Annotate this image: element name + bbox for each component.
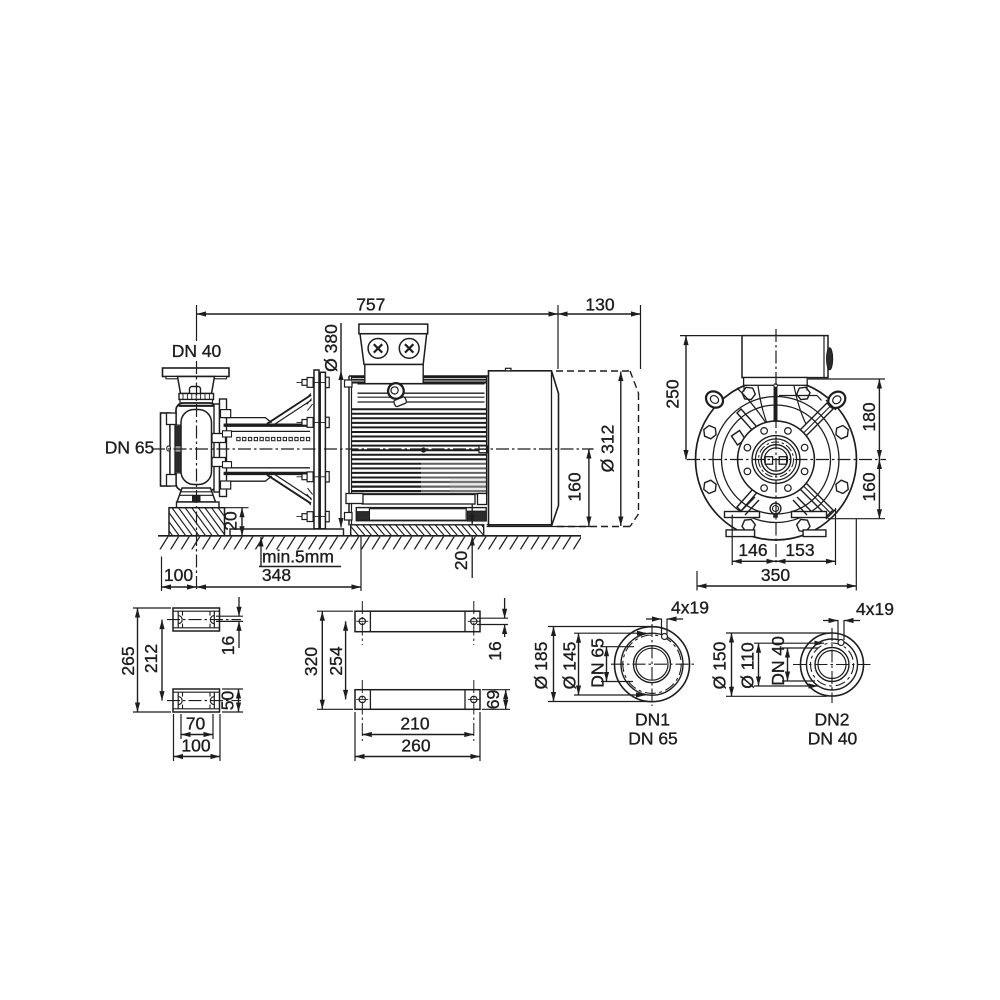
- svg-text:160: 160: [565, 472, 585, 501]
- svg-text:Ø 145: Ø 145: [560, 642, 580, 690]
- svg-text:100: 100: [181, 736, 210, 756]
- svg-text:Ø 312: Ø 312: [598, 425, 618, 473]
- svg-text:130: 130: [585, 295, 614, 315]
- svg-text:160: 160: [859, 472, 879, 501]
- svg-text:146: 146: [738, 540, 767, 560]
- svg-text:50: 50: [218, 691, 238, 711]
- svg-text:DN 40: DN 40: [808, 729, 858, 749]
- svg-text:Ø 185: Ø 185: [531, 642, 551, 690]
- svg-text:350: 350: [761, 565, 790, 585]
- svg-text:250: 250: [663, 379, 683, 408]
- svg-text:DN 40: DN 40: [172, 341, 222, 361]
- svg-text:757: 757: [356, 295, 385, 315]
- svg-text:DN1: DN1: [635, 710, 670, 730]
- svg-text:DN 65: DN 65: [105, 438, 155, 458]
- svg-text:69: 69: [483, 690, 503, 709]
- svg-text:DN2: DN2: [814, 710, 849, 730]
- svg-text:100: 100: [164, 565, 193, 585]
- svg-text:210: 210: [400, 714, 429, 734]
- svg-text:min.5mm: min.5mm: [262, 547, 334, 567]
- svg-text:DN 65: DN 65: [588, 638, 608, 688]
- svg-text:Ø 380: Ø 380: [321, 324, 341, 372]
- svg-text:320: 320: [301, 647, 321, 676]
- svg-text:Ø 150: Ø 150: [710, 641, 730, 689]
- svg-text:265: 265: [118, 646, 138, 675]
- svg-text:70: 70: [186, 714, 206, 734]
- svg-text:4x19: 4x19: [856, 599, 894, 619]
- svg-text:16: 16: [485, 641, 505, 660]
- svg-text:4x19: 4x19: [671, 598, 709, 618]
- svg-text:20: 20: [451, 551, 471, 571]
- svg-text:Ø 110: Ø 110: [738, 642, 758, 689]
- svg-text:DN 65: DN 65: [628, 729, 678, 749]
- svg-text:254: 254: [326, 646, 346, 675]
- svg-text:153: 153: [785, 540, 814, 560]
- svg-text:16: 16: [218, 636, 238, 655]
- svg-text:20: 20: [221, 511, 241, 531]
- svg-text:260: 260: [401, 736, 430, 756]
- svg-text:180: 180: [859, 402, 879, 431]
- svg-text:DN 40: DN 40: [768, 636, 788, 686]
- svg-text:348: 348: [262, 565, 291, 585]
- svg-text:212: 212: [141, 644, 161, 673]
